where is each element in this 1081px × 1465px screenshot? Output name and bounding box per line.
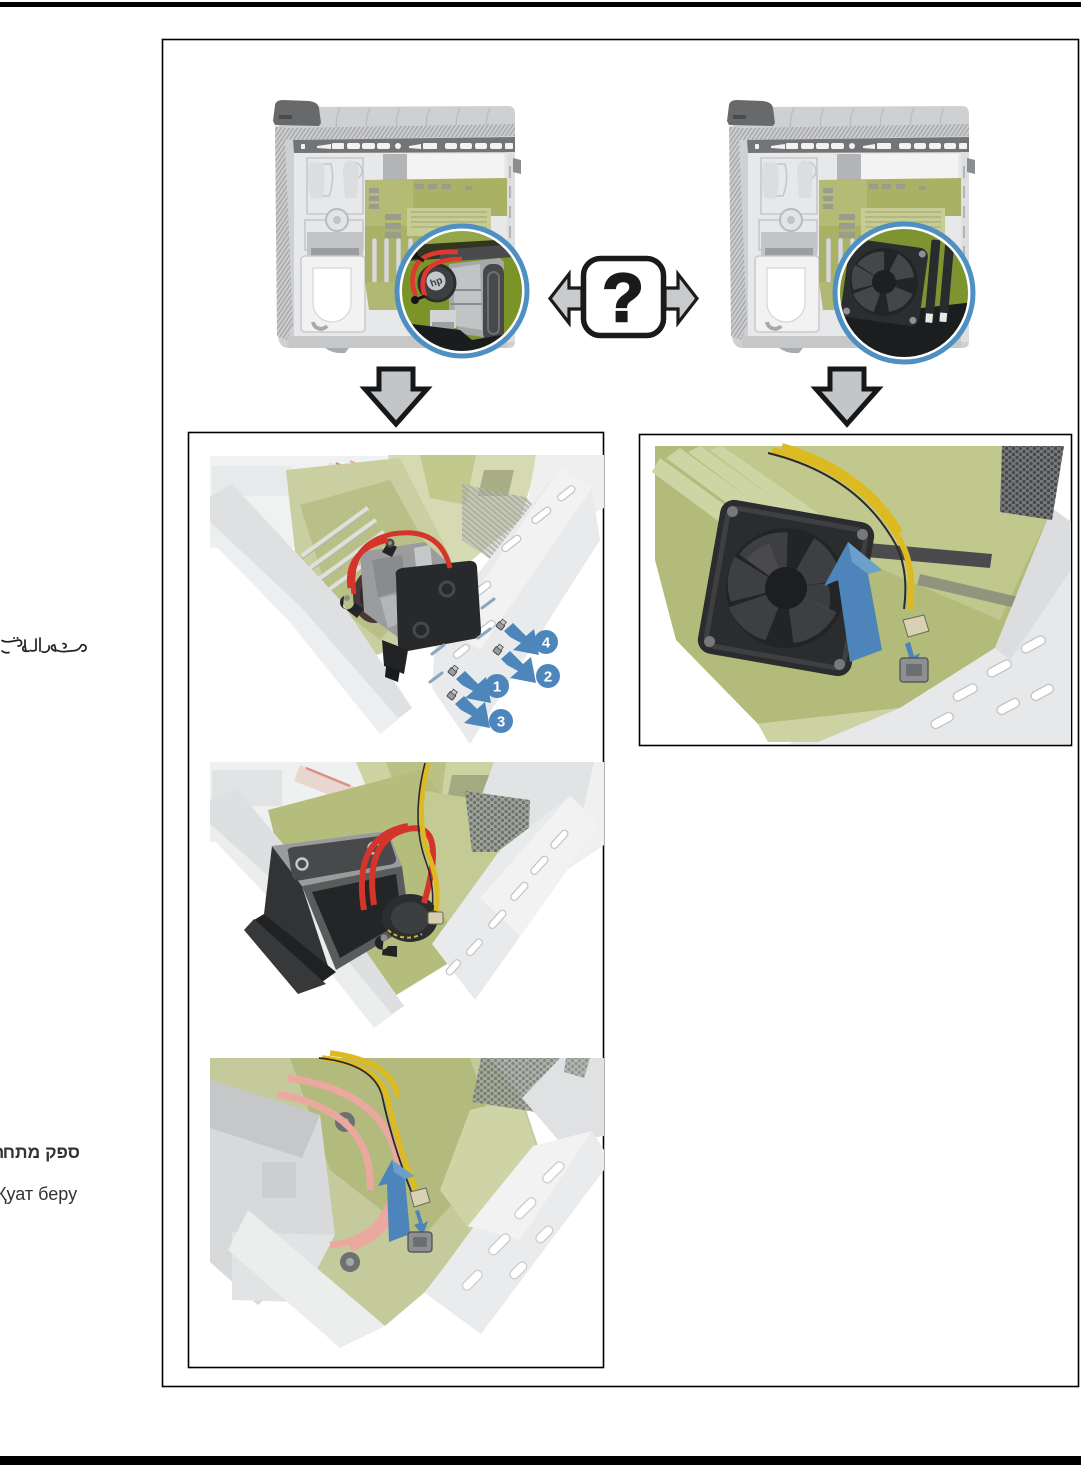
svg-text:4: 4 bbox=[542, 635, 551, 652]
svg-text:3: 3 bbox=[497, 714, 505, 731]
svg-text:1: 1 bbox=[493, 679, 501, 696]
svg-text:2: 2 bbox=[544, 669, 552, 686]
svg-text:?: ? bbox=[602, 260, 644, 336]
